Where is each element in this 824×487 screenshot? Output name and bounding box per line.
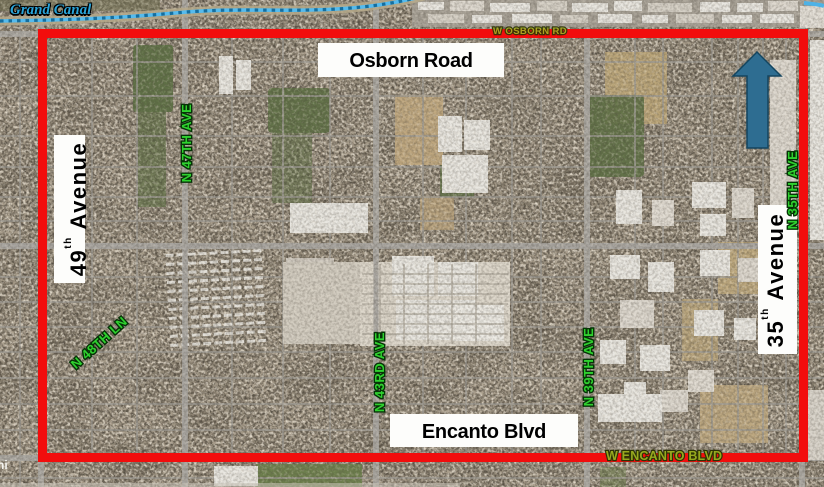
- svg-text:N 47TH AVE: N 47TH AVE: [179, 104, 194, 183]
- svg-text:hi: hi: [0, 458, 8, 472]
- svg-text:N 35TH AVE: N 35TH AVE: [785, 151, 800, 230]
- svg-text:W ENCANTO BLVD: W ENCANTO BLVD: [606, 449, 722, 463]
- svg-text:N 43RD AVE: N 43RD AVE: [372, 332, 387, 412]
- svg-text:W OSBORN RD: W OSBORN RD: [493, 26, 567, 37]
- svg-text:N 48TH LN: N 48TH LN: [68, 314, 130, 372]
- svg-text:N 39TH AVE: N 39TH AVE: [581, 328, 596, 407]
